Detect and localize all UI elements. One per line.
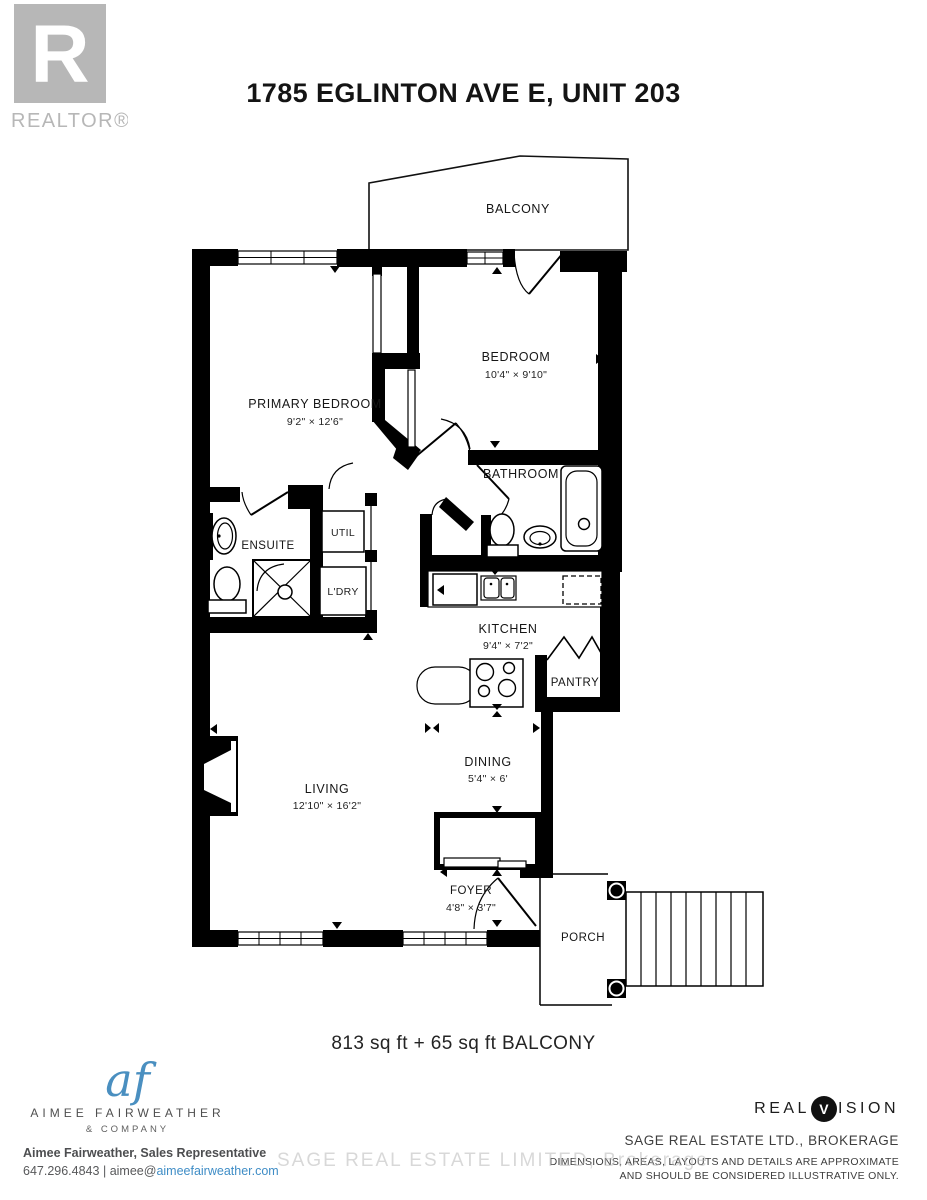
- label-balcony: BALCONY: [486, 202, 550, 216]
- bathroom-sink-icon: [524, 526, 556, 548]
- brokerage-name: SAGE REAL ESTATE LTD., BROKERAGE: [550, 1133, 899, 1148]
- stairs-icon: [626, 892, 763, 986]
- bathtub-icon: [561, 466, 602, 551]
- dims-dining: 5'4" × 6': [468, 773, 508, 785]
- contact-separator: |: [103, 1164, 106, 1178]
- ensuite-sink-icon: [212, 518, 236, 554]
- realvision-v-icon: V: [811, 1096, 837, 1122]
- agency-name: AIMEE FAIRWEATHER: [20, 1106, 235, 1120]
- disclaimer-line-2: AND SHOULD BE CONSIDERED ILLUSTRATIVE ON…: [550, 1169, 899, 1183]
- label-pantry: PANTRY: [551, 677, 600, 689]
- agency-tagline: & COMPANY: [20, 1124, 235, 1135]
- disclaimer: DIMENSIONS, AREAS, LAYOUTS AND DETAILS A…: [550, 1155, 899, 1183]
- porch-post: [607, 979, 626, 998]
- agent-contact: Aimee Fairweather, Sales Representative …: [23, 1146, 279, 1178]
- dishwasher-icon: [563, 576, 601, 604]
- window-living-right: [403, 932, 487, 945]
- label-ensuite: ENSUITE: [241, 540, 294, 552]
- dims-foyer: 4'8" × 3'7": [446, 902, 496, 914]
- dims-kitchen: 9'4" × 7'2": [483, 640, 533, 652]
- realvision-logo-right: ISION: [838, 1100, 899, 1118]
- agent-email-prefix: aimee@: [110, 1164, 157, 1178]
- toilet-icon: [487, 514, 518, 557]
- entry-door: [498, 878, 536, 926]
- agency-brand: af AIMEE FAIRWEATHER & COMPANY: [20, 1058, 235, 1135]
- agent-contact-line: 647.296.4843 | aimee@aimeefairweather.co…: [23, 1164, 279, 1178]
- area-summary: 813 sq ft + 65 sq ft BALCONY: [0, 1033, 927, 1055]
- label-living: LIVING: [305, 782, 350, 796]
- interior-walls: [192, 267, 604, 712]
- window-living-left: [238, 932, 323, 945]
- stove-icon: [470, 659, 523, 707]
- brokerage-block: REAL V ISION SAGE REAL ESTATE LTD., BROK…: [550, 1096, 899, 1183]
- dims-bedroom: 10'4" × 9'10": [485, 369, 547, 381]
- disclaimer-line-1: DIMENSIONS, AREAS, LAYOUTS AND DETAILS A…: [550, 1155, 899, 1169]
- window-primary-bedroom: [238, 251, 337, 264]
- dims-living: 12'10" × 16'2": [293, 800, 362, 812]
- floorplan-page: R REALTOR® 1785 EGLINTON AVE E, UNIT 203: [0, 0, 927, 1200]
- foyer-closet: [437, 815, 538, 868]
- label-primary-bedroom: PRIMARY BEDROOM: [248, 397, 382, 411]
- kitchen-sink-icon: [481, 576, 516, 600]
- realvision-logo: REAL V ISION: [550, 1096, 899, 1122]
- agent-name-line: Aimee Fairweather, Sales Representative: [23, 1146, 279, 1160]
- shower-icon: [253, 560, 311, 617]
- fireplace: [198, 736, 238, 816]
- agent-phone: 647.296.4843: [23, 1164, 99, 1178]
- label-bathroom: BATHROOM: [483, 467, 559, 481]
- balcony-door: [529, 253, 563, 294]
- realvision-logo-left: REAL: [754, 1100, 810, 1118]
- label-dining: DINING: [464, 755, 511, 769]
- label-kitchen: KITCHEN: [478, 622, 537, 636]
- ensuite-door: [251, 492, 288, 515]
- label-util: UTIL: [331, 527, 355, 539]
- porch-post: [607, 881, 626, 900]
- ensuite-fixtures: [208, 518, 311, 617]
- kitchen-island: [417, 667, 477, 704]
- label-porch: PORCH: [561, 932, 605, 944]
- floorplan-drawing: BALCONY PRIMARY BEDROOM 9'2" × 12'6" BED…: [0, 0, 927, 1200]
- dims-primary-bedroom: 9'2" × 12'6": [287, 416, 343, 428]
- agent-email-link[interactable]: aimeefairweather.com: [156, 1164, 278, 1178]
- window-balcony: [467, 252, 503, 264]
- label-laundry: L'DRY: [327, 586, 358, 598]
- label-bedroom: BEDROOM: [482, 350, 551, 364]
- pantry-bifold-door: [547, 637, 605, 660]
- agency-monogram-icon: af: [20, 1058, 235, 1102]
- label-foyer: FOYER: [450, 885, 492, 897]
- hall-door: [329, 463, 353, 489]
- ensuite-toilet-icon: [208, 567, 246, 613]
